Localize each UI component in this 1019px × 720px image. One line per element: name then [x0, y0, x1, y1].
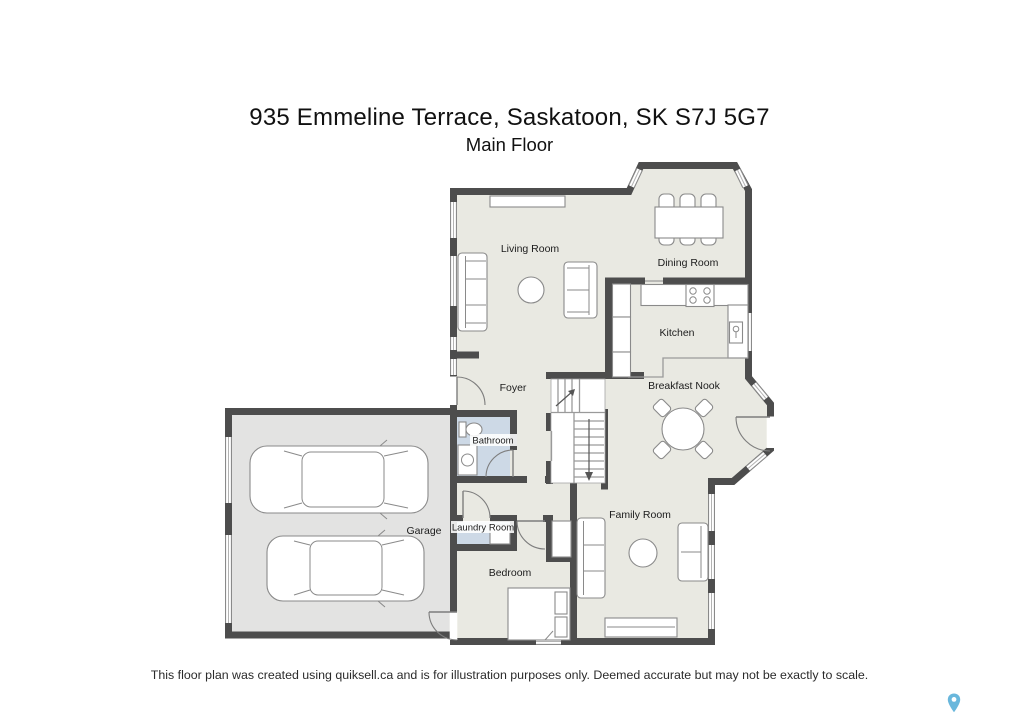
window-seat — [490, 196, 565, 207]
car-2 — [267, 530, 424, 607]
stove — [686, 285, 714, 307]
bathroom-vanity — [458, 445, 477, 475]
living-loveseat — [564, 262, 597, 318]
pantry-closets — [613, 284, 631, 377]
floor-plan-svg: Living Room Dining Room Kitchen Breakfas… — [0, 0, 1019, 720]
room-label-bedroom: Bedroom — [489, 567, 532, 579]
disclaimer-text: This floor plan was created using quikse… — [0, 668, 1019, 682]
room-label-bathroom: Bathroom — [472, 436, 513, 447]
room-label-foyer: Foyer — [500, 382, 527, 394]
map-pin-icon — [947, 693, 961, 718]
floor-plan-page: 935 Emmeline Terrace, Saskatoon, SK S7J … — [0, 0, 1019, 720]
living-sofa — [458, 253, 487, 331]
family-round-table — [629, 539, 657, 567]
room-label-kitchen: Kitchen — [659, 327, 694, 339]
media-cabinet — [605, 618, 677, 637]
bed — [508, 588, 570, 640]
family-loveseat — [678, 523, 708, 581]
family-sofa — [577, 518, 605, 598]
nook-table — [662, 408, 704, 450]
room-label-living-room: Living Room — [501, 243, 560, 255]
staircase — [551, 379, 605, 483]
room-label-garage: Garage — [406, 525, 441, 537]
room-label-dining-room: Dining Room — [658, 257, 719, 269]
car-1 — [250, 440, 428, 519]
kitchen-sink — [730, 322, 743, 343]
living-round-table — [518, 277, 544, 303]
dining-furniture — [655, 194, 723, 245]
room-label-laundry-room: Laundry Room — [452, 523, 514, 534]
room-label-breakfast-nook: Breakfast Nook — [648, 380, 721, 392]
dining-table — [655, 207, 723, 238]
room-label-family-room: Family Room — [609, 509, 671, 521]
bedroom-closet — [552, 521, 571, 557]
